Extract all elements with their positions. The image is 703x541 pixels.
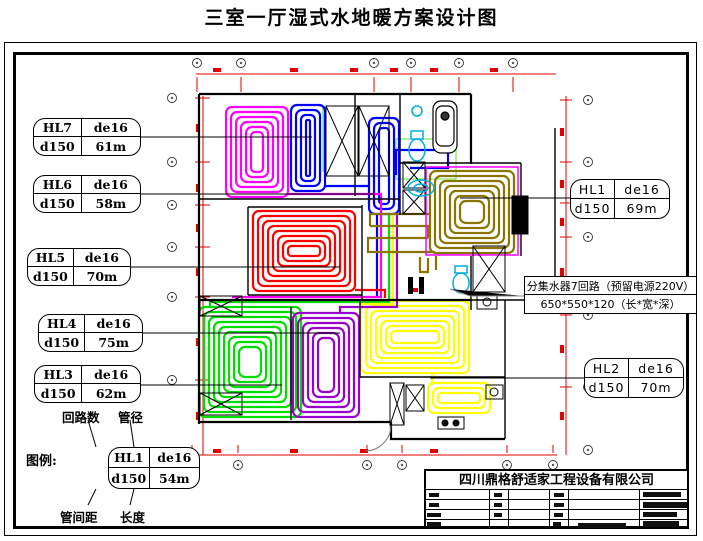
hl3-coil — [239, 347, 261, 377]
pipe-type: de16 — [82, 176, 140, 194]
title-block: 四川鼎格舒适家工程设备有限公司 — [424, 469, 689, 528]
cad-drawing: 三室一厅湿式水地暖方案设计图 — [0, 0, 703, 541]
pipe-spacing: d150 — [28, 267, 74, 285]
legend-pipe-dia-label: 管径 — [118, 407, 143, 426]
loop-length: 69m — [615, 199, 669, 218]
loop-length: 75m — [85, 333, 142, 351]
hl5-coil — [288, 246, 320, 256]
door-swing-arc — [365, 425, 391, 451]
toilet-icon — [409, 131, 425, 161]
heating-coils — [199, 105, 514, 417]
pipe-spacing: d150 — [34, 137, 82, 155]
loop-length: 58m — [82, 194, 140, 212]
pipe-type: de16 — [74, 249, 130, 267]
bath-sink-icon — [477, 296, 497, 309]
hl7-coil — [251, 132, 263, 172]
hl6-coil-hall — [374, 123, 394, 209]
legend-caption: 图例: — [26, 450, 57, 469]
stove-icon — [438, 417, 464, 429]
loop-id: HL1 — [109, 448, 150, 468]
pipe-spacing: d150 — [34, 194, 82, 212]
manifold-note-line1: 分集水器7回路（预留电源220V） — [524, 276, 697, 295]
loop-label-hl7: HL7 de16 d150 61m — [33, 118, 141, 156]
loop-length: 62m — [82, 384, 140, 402]
hl4-coil — [318, 338, 334, 392]
hl7-coil — [231, 112, 283, 192]
loop-length: 70m — [629, 378, 683, 397]
hl6-coil — [301, 115, 315, 181]
pipe-type: de16 — [82, 119, 140, 137]
loop-id: HL1 — [571, 180, 615, 199]
pipe-type: de16 — [150, 448, 200, 468]
manifold-note-line2: 650*550*120（长*宽*深） — [524, 295, 697, 314]
hl7-coil — [246, 127, 268, 177]
hl2-coil — [371, 311, 459, 363]
loop-label-hl1: HL1 de16 d150 69m — [570, 179, 670, 219]
hl2-coil-kitchen — [438, 393, 480, 403]
loop-label-hl3: HL3 de16 d150 62m — [34, 365, 141, 403]
pipe-type: de16 — [82, 366, 140, 384]
hl1-coil — [460, 201, 484, 223]
legend-length-label: 长度 — [120, 507, 145, 526]
loop-length: 54m — [150, 468, 200, 488]
pipe-type: de16 — [615, 180, 669, 199]
pipe-spacing: d150 — [571, 199, 615, 218]
pipe-type: de16 — [629, 359, 683, 378]
pipe-spacing: d150 — [109, 468, 150, 488]
bathtub-icon — [433, 101, 457, 153]
legend-loop-count-label: 回路数 — [62, 407, 100, 426]
loop-id: HL2 — [585, 359, 629, 378]
loop-length: 61m — [82, 137, 140, 155]
pipe-spacing: d150 — [585, 378, 629, 397]
loop-id: HL6 — [34, 176, 82, 194]
sink-icon — [412, 106, 422, 116]
company-name: 四川鼎格舒适家工程设备有限公司 — [426, 471, 687, 490]
hl2-coil — [391, 331, 439, 343]
loop-id: HL3 — [35, 366, 82, 384]
hl5-coil — [283, 241, 325, 261]
hl2-coil — [376, 316, 454, 358]
manifold-note: 分集水器7回路（预留电源220V） 650*550*120（长*宽*深） — [524, 276, 697, 314]
legend-spacing-label: 管间距 — [60, 507, 98, 526]
loop-label-hl4: HL4 de16 d150 75m — [38, 314, 143, 352]
loop-label-hl6: HL6 de16 d150 58m — [33, 175, 141, 213]
legend-sample-box: HL1 de16 d150 54m — [108, 447, 200, 489]
hl1-coil — [445, 186, 499, 238]
hl6-coil — [296, 110, 320, 186]
loop-id: HL4 — [39, 315, 85, 333]
loop-label-hl5: HL5 de16 d150 70m — [27, 248, 131, 286]
manifold — [408, 277, 424, 294]
hl6-coil — [306, 120, 310, 176]
hl2-coil — [386, 326, 444, 348]
loop-id: HL5 — [28, 249, 74, 267]
pipe-type: de16 — [85, 315, 142, 333]
hl4-coil — [303, 323, 349, 407]
pipe-spacing: d150 — [35, 384, 82, 402]
hl2-coil-kitchen — [433, 388, 485, 408]
wall-block — [512, 196, 528, 234]
pipe-spacing: d150 — [39, 333, 85, 351]
loop-id: HL7 — [34, 119, 82, 137]
toilet-icon-2 — [453, 266, 469, 293]
loop-length: 70m — [74, 267, 130, 285]
hl6-coil-hall — [379, 128, 389, 204]
loop-label-hl2: HL2 de16 d150 70m — [584, 358, 684, 398]
hl1-stub — [420, 256, 436, 272]
